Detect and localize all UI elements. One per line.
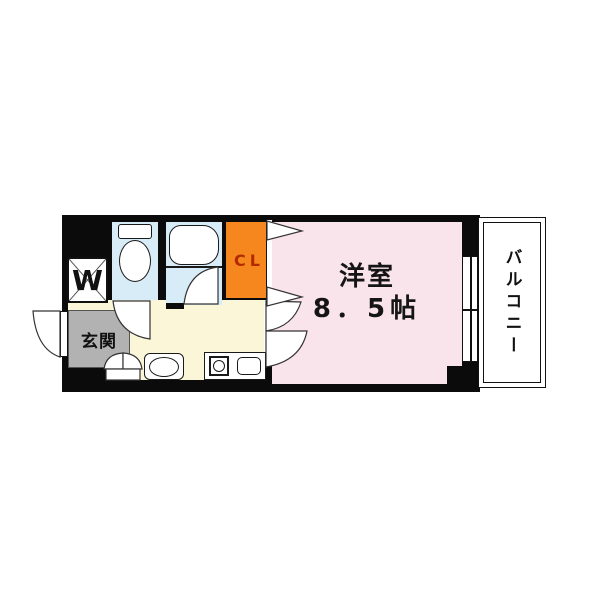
folding-door-triangle-top-icon <box>267 221 302 240</box>
entrance-door-swing-icon <box>33 311 60 357</box>
cabinet-base <box>106 369 140 380</box>
cabinet-door-right-icon <box>123 353 142 369</box>
floor-plan: CL 洋室 8．5帖 バルコニー W 玄関 <box>0 0 600 600</box>
room-door-swing-lower-icon <box>266 331 307 367</box>
cabinet-door-left-icon <box>104 353 123 369</box>
bathroom-door-swing-icon <box>184 267 218 304</box>
toilet-door-swing-icon <box>113 301 150 339</box>
door-symbols-layer <box>0 0 600 600</box>
